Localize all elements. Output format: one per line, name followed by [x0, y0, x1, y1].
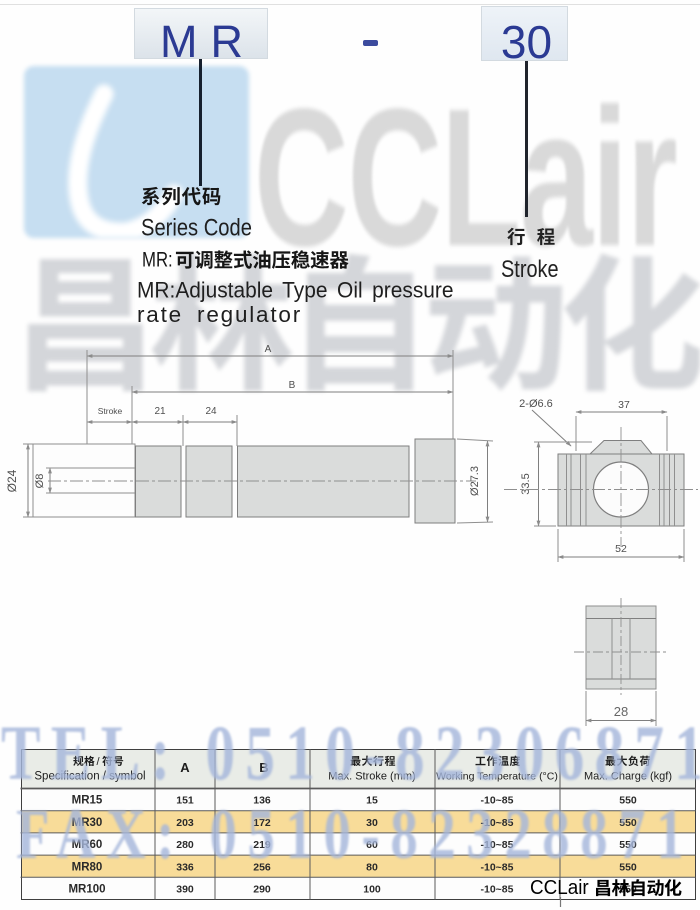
svg-text:CCLair: CCLair — [530, 876, 589, 899]
